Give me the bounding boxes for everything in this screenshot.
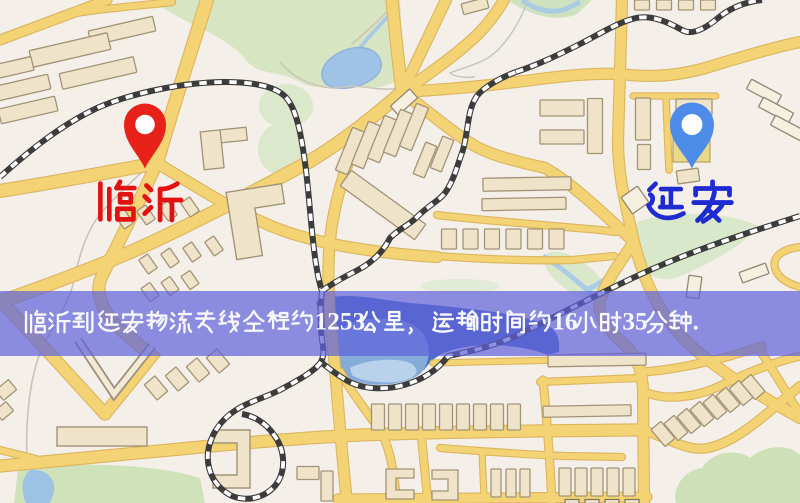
svg-text:1253: 1253 [315,307,366,335]
svg-text:.: . [693,307,699,335]
svg-text:16: 16 [552,307,577,335]
svg-text:35: 35 [622,307,647,335]
